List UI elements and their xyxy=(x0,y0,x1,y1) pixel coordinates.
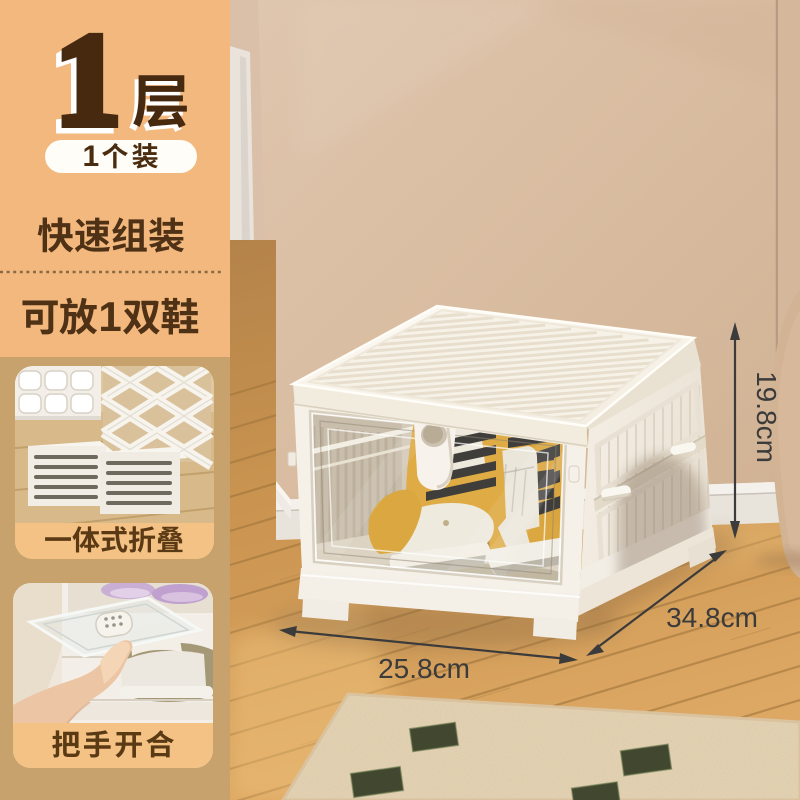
svg-text:19.8cm: 19.8cm xyxy=(751,371,782,463)
svg-text:25.8cm: 25.8cm xyxy=(378,653,470,684)
svg-text:1: 1 xyxy=(55,6,121,153)
svg-text:1: 1 xyxy=(82,140,99,173)
svg-text:34.8cm: 34.8cm xyxy=(666,602,758,633)
svg-text:1: 1 xyxy=(98,293,121,340)
